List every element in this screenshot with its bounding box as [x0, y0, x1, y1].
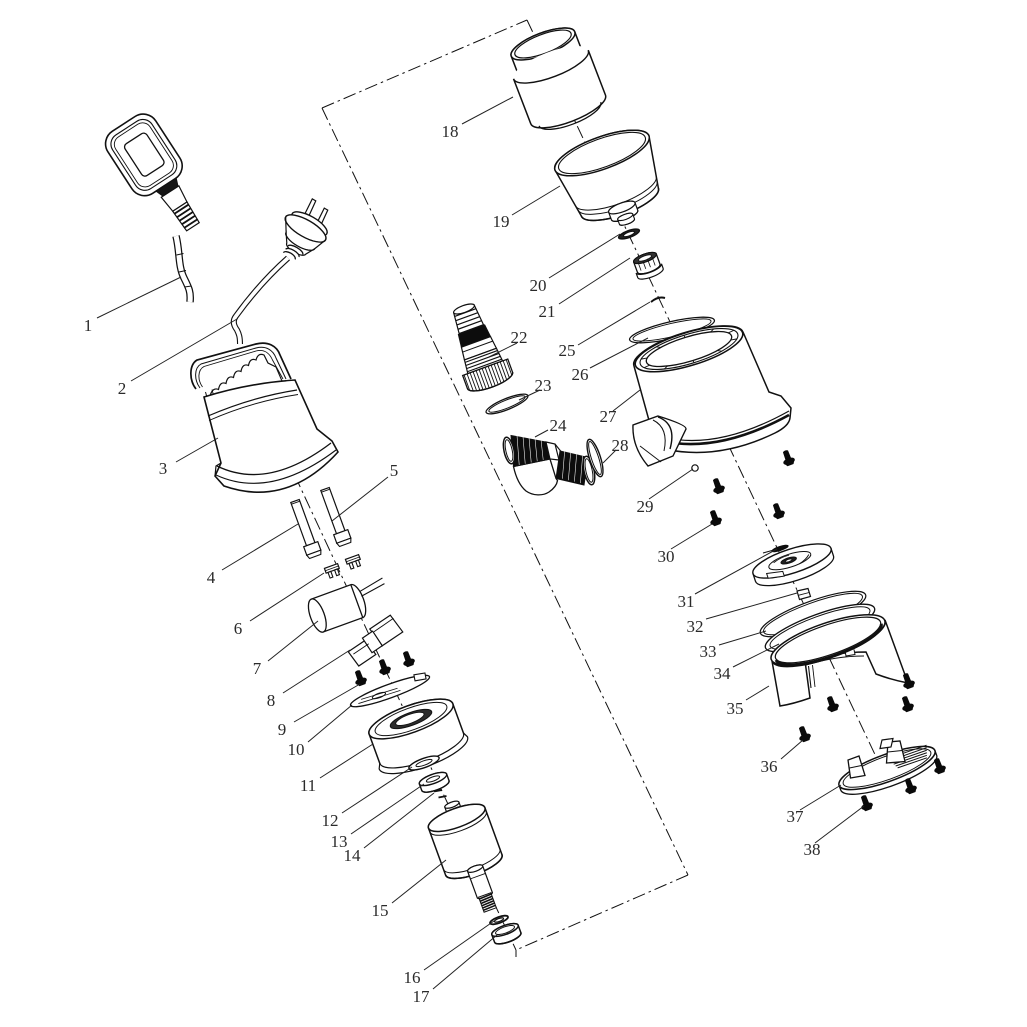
svg-text:16: 16 [404, 968, 421, 987]
svg-text:24: 24 [550, 416, 568, 435]
svg-text:3: 3 [159, 459, 168, 478]
svg-text:4: 4 [207, 568, 216, 587]
svg-text:34: 34 [714, 664, 732, 683]
svg-text:17: 17 [413, 987, 431, 1006]
svg-text:25: 25 [559, 341, 576, 360]
svg-text:21: 21 [539, 302, 556, 321]
svg-text:7: 7 [253, 659, 262, 678]
svg-text:36: 36 [761, 757, 778, 776]
svg-text:19: 19 [493, 212, 510, 231]
svg-text:8: 8 [267, 691, 276, 710]
svg-text:11: 11 [300, 776, 316, 795]
svg-text:35: 35 [727, 699, 744, 718]
svg-text:31: 31 [678, 592, 695, 611]
svg-text:32: 32 [687, 617, 704, 636]
svg-text:33: 33 [700, 642, 717, 661]
svg-text:2: 2 [118, 379, 127, 398]
svg-text:5: 5 [390, 461, 399, 480]
svg-text:23: 23 [535, 376, 552, 395]
svg-text:37: 37 [787, 807, 805, 826]
svg-text:29: 29 [637, 497, 654, 516]
svg-text:38: 38 [804, 840, 821, 859]
svg-text:20: 20 [530, 276, 547, 295]
svg-text:28: 28 [612, 436, 629, 455]
svg-text:9: 9 [278, 720, 287, 739]
svg-text:12: 12 [322, 811, 339, 830]
svg-text:27: 27 [600, 407, 618, 426]
svg-text:22: 22 [511, 328, 528, 347]
svg-text:30: 30 [658, 547, 675, 566]
svg-text:18: 18 [442, 122, 459, 141]
svg-text:10: 10 [288, 740, 305, 759]
svg-text:26: 26 [572, 365, 589, 384]
svg-text:1: 1 [84, 316, 93, 335]
svg-text:15: 15 [372, 901, 389, 920]
svg-text:6: 6 [234, 619, 243, 638]
svg-text:14: 14 [344, 846, 362, 865]
